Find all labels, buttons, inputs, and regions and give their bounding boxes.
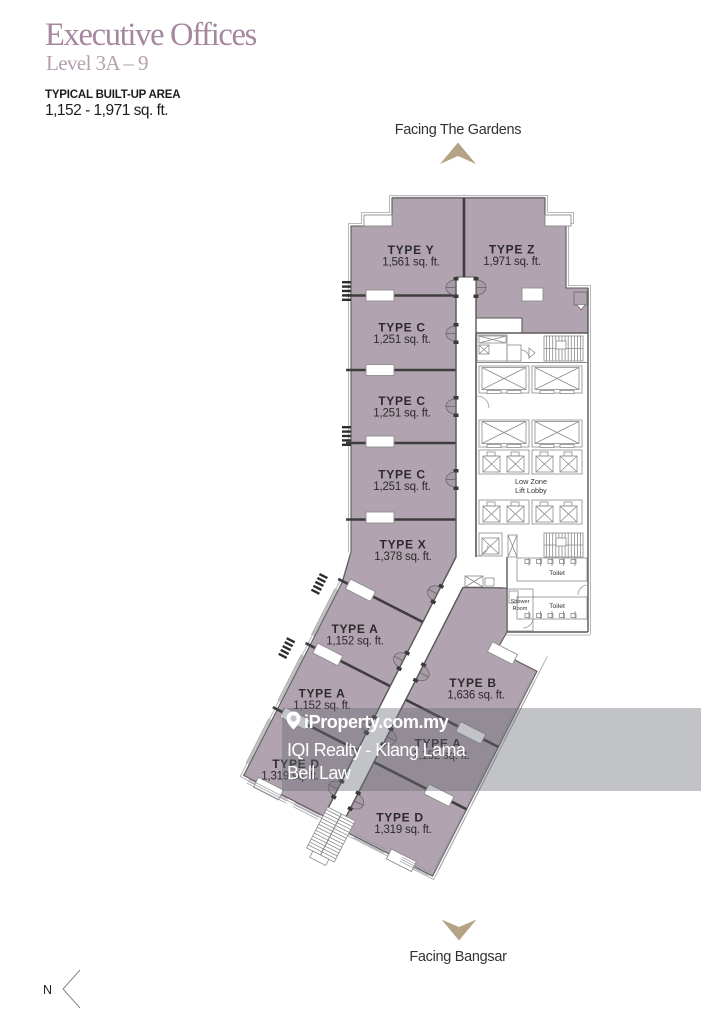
svg-text:Shower: Shower <box>511 599 530 605</box>
svg-text:Toilet: Toilet <box>549 570 565 577</box>
svg-text:1,971 sq. ft.: 1,971 sq. ft. <box>483 256 541 268</box>
svg-text:TYPE A: TYPE A <box>298 687 345 701</box>
svg-text:1,378 sq. ft.: 1,378 sq. ft. <box>374 551 432 563</box>
svg-text:Executive Offices: Executive Offices <box>45 17 257 53</box>
svg-text:1,152 sq. ft.: 1,152 sq. ft. <box>326 636 384 648</box>
svg-text:IQI Realty - Klang Lama: IQI Realty - Klang Lama <box>287 740 467 760</box>
svg-text:Bell Law: Bell Law <box>287 763 352 783</box>
svg-text:1,251 sq. ft.: 1,251 sq. ft. <box>373 408 431 420</box>
svg-text:TYPE A: TYPE A <box>331 622 378 636</box>
svg-text:TYPE C: TYPE C <box>378 394 426 408</box>
svg-text:TYPE X: TYPE X <box>380 538 427 552</box>
svg-text:1,319 sq. ft.: 1,319 sq. ft. <box>374 824 432 836</box>
svg-text:TYPICAL BUILT-UP AREA: TYPICAL BUILT-UP AREA <box>45 89 180 101</box>
svg-text:TYPE B: TYPE B <box>449 676 497 690</box>
svg-text:TYPE Y: TYPE Y <box>388 243 435 257</box>
svg-text:TYPE C: TYPE C <box>378 468 426 482</box>
svg-text:1,152 - 1,971 sq. ft.: 1,152 - 1,971 sq. ft. <box>45 102 168 119</box>
svg-text:Facing Bangsar: Facing Bangsar <box>409 949 507 965</box>
svg-text:1,251 sq. ft.: 1,251 sq. ft. <box>373 481 431 493</box>
svg-text:TYPE D: TYPE D <box>376 811 424 825</box>
svg-text:Room: Room <box>513 606 528 612</box>
svg-text:Low Zone: Low Zone <box>515 477 547 486</box>
svg-text:Toilet: Toilet <box>549 603 565 610</box>
svg-text:1,251 sq. ft.: 1,251 sq. ft. <box>373 334 431 346</box>
svg-text:1,561 sq. ft.: 1,561 sq. ft. <box>382 257 440 269</box>
svg-text:Level 3A – 9: Level 3A – 9 <box>46 51 148 75</box>
svg-text:1,636 sq. ft.: 1,636 sq. ft. <box>447 690 505 702</box>
svg-text:N: N <box>43 983 52 997</box>
svg-text:Facing The Gardens: Facing The Gardens <box>395 122 522 138</box>
svg-text:TYPE Z: TYPE Z <box>489 243 535 257</box>
svg-text:iProperty.com.my: iProperty.com.my <box>304 712 449 732</box>
svg-text:TYPE C: TYPE C <box>378 321 426 335</box>
svg-text:Lift Lobby: Lift Lobby <box>515 486 547 495</box>
